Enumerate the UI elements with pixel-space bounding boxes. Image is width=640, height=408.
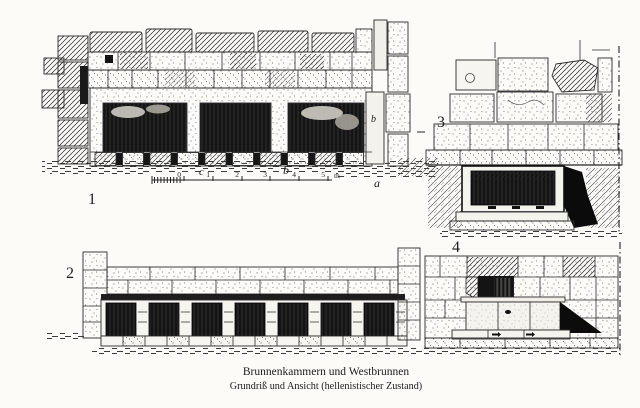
fig4-drain-hole <box>505 310 511 314</box>
opening-2 <box>149 303 179 336</box>
fig3-wall-course <box>434 124 618 150</box>
scale-tick-4: 4 <box>292 170 296 179</box>
fig3-step-1 <box>456 212 568 221</box>
fig3-well-basin <box>462 166 564 212</box>
fig3-ground-course <box>426 150 622 165</box>
scale-tick-2: 2 <box>235 170 239 179</box>
fig3-step-2 <box>450 221 574 230</box>
plate-canvas: b <box>0 0 640 408</box>
fig4-base-course <box>425 338 618 348</box>
opening-3 <box>192 303 222 336</box>
plate-caption: Brunnenkammern und Westbrunnen Grundriß … <box>230 366 422 392</box>
fig4-basin <box>461 297 565 330</box>
fig4-lintel-hatch <box>467 257 518 277</box>
fig1-plan-drawing: b <box>42 20 438 208</box>
fig2-elevation-drawing: 2 <box>46 248 422 354</box>
scale-letter-c: c <box>199 167 204 178</box>
scale-letter-b: b <box>283 163 289 177</box>
fig1-number: 1 <box>88 191 96 208</box>
fig2-wall-band <box>107 267 398 294</box>
scale-tick-3: 3 <box>263 170 267 179</box>
fig2-number: 2 <box>66 265 74 282</box>
fig1-left-wall <box>42 36 88 164</box>
fig1-ashlar-course <box>88 70 372 88</box>
opening-5 <box>278 303 308 336</box>
fig2-corner-return <box>398 248 420 340</box>
scale-tick-5: 5 <box>321 170 325 179</box>
scale-letter-a: a <box>374 176 380 190</box>
fig4-fountain-drawing: 4 <box>402 239 620 356</box>
opening-7 <box>364 303 394 336</box>
opening-1 <box>106 303 136 336</box>
fig1-second-course <box>88 52 372 70</box>
scale-tick-1: 1 <box>206 170 210 179</box>
fig4-number: 4 <box>452 239 460 256</box>
fig2-ground-hatch <box>92 347 422 354</box>
chamber-2 <box>200 103 271 152</box>
fig3-top-blocks <box>450 40 612 122</box>
fig2-architrave <box>101 294 405 300</box>
caption-subtitle: Grundriß und Ansicht (hellenistischer Zu… <box>230 381 422 392</box>
fig3-section-drawing: 3 <box>417 40 622 238</box>
fig3-ground-hatch <box>440 230 622 238</box>
fig4-ground-hatch <box>402 348 620 356</box>
fig1-sill-course <box>95 153 364 166</box>
opening-6 <box>321 303 351 336</box>
fig1-pillar-b <box>366 92 384 164</box>
caption-title: Brunnenkammern und Westbrunnen <box>243 366 409 378</box>
fig1-chamber-zone: b <box>90 88 384 166</box>
scale-tick-0: 0 <box>177 170 181 179</box>
engraving-plate: b <box>0 0 640 408</box>
opening-4 <box>235 303 265 336</box>
fig1-pillar-letter: b <box>371 114 376 125</box>
scale-unit: m <box>334 171 340 180</box>
